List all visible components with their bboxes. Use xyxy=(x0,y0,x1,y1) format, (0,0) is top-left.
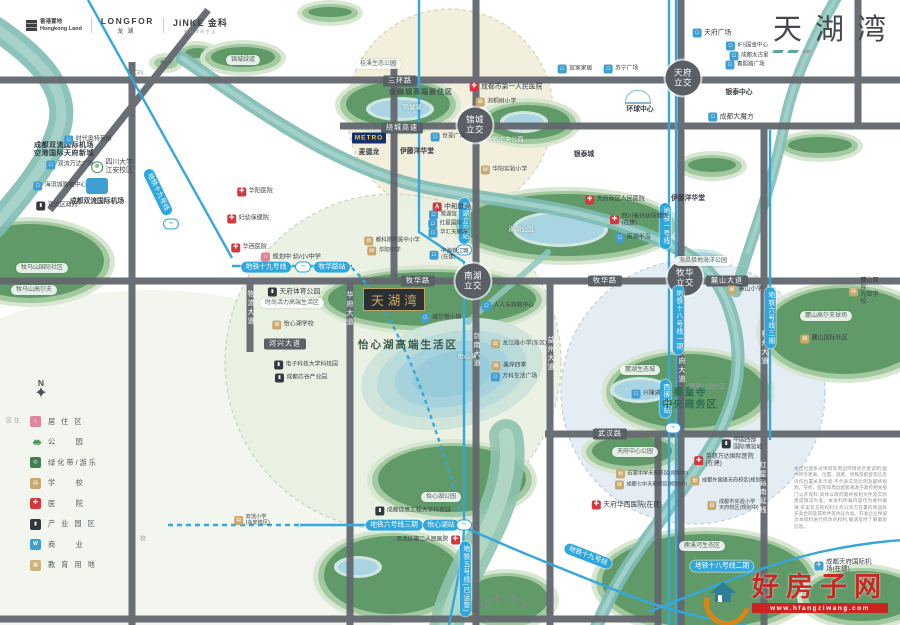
poi-label-text: 华西医院 xyxy=(243,245,267,252)
watermark-site-url: www.hfangziwang.com xyxy=(752,603,888,613)
place-pill-label: 海昌极地海洋公园 xyxy=(674,256,732,266)
poi-label-text: 华阳实验小学 xyxy=(492,167,527,174)
poi-label: ❁四川大学 江安校区 xyxy=(91,159,133,175)
poi-label: ✚四川省妇幼保健院 (在建) xyxy=(610,213,668,226)
poi-label-text: 宜家家居 xyxy=(569,66,592,73)
poi-label-text: 泡桐树小学 xyxy=(487,99,516,106)
poi-label-text: 成都市第一人民医院 xyxy=(481,83,542,91)
compass: N ✦ xyxy=(30,378,52,400)
legend-hosp-icon: ✚ xyxy=(30,498,41,509)
poi-label: ◻天府广场 xyxy=(693,29,732,38)
poi-label-text: 教科院附属中小学 xyxy=(376,238,420,244)
metro-station-icon: ~ xyxy=(295,262,311,273)
divider xyxy=(91,18,92,33)
road-name-label: 华府大道 xyxy=(345,291,353,327)
blue-icon: ◻ xyxy=(428,220,437,229)
poi-label: ▤华阳中学 xyxy=(367,247,401,256)
blue-icon: ◻ xyxy=(429,251,438,260)
hosp-icon: ✚ xyxy=(585,196,594,205)
dark-icon: ▮ xyxy=(274,361,283,370)
poi-label: ▤怡心湖学校 xyxy=(272,321,314,330)
hosp-icon: ✚ xyxy=(451,536,460,545)
legend-item: ▤学 校 xyxy=(30,478,98,489)
legend-item-label: 医 院 xyxy=(48,499,85,509)
legend-item: ▦教 育 用 地 xyxy=(30,560,98,571)
poi-label-text: 成都大魔方 xyxy=(720,113,754,121)
blue-icon: ◻ xyxy=(604,65,613,74)
poi-label: ▮天府体育公园 xyxy=(268,288,320,297)
road-name-label: 牧华路 xyxy=(401,275,435,286)
poi-label: ◻苏宁广场 xyxy=(604,65,639,74)
place-pill-label: 麓山高尔夫球场 xyxy=(800,311,852,321)
poi-label: ▤美岸四季 xyxy=(492,362,527,371)
poi-label-text: 规划中 幼/小/中学 xyxy=(273,253,321,260)
poi-label: ◻IFS国金中心 xyxy=(726,42,768,51)
poi-label-text: 麓山小学 xyxy=(739,287,763,294)
road-name-label: 益州大道 xyxy=(546,336,554,372)
plane-icon: ✈ xyxy=(815,562,824,571)
poi-label-text: 天府体育公园 xyxy=(279,288,320,296)
poi-label-text: 四川大学 江安校区 xyxy=(106,159,133,175)
place-pill-label: 桂溪生态公园 xyxy=(355,59,401,69)
poi-label-text: 人人乐购物中心 xyxy=(493,303,534,310)
place-pill-label: 牧马山国际社区 xyxy=(16,263,68,273)
road-name-label: 绕城高速 xyxy=(381,122,423,133)
place-pill-label: 锦城绿道 xyxy=(226,55,260,65)
blue-icon: ◻ xyxy=(615,234,624,243)
legend-item-label: 居 住 区 xyxy=(48,417,84,427)
metro-station-label: 怡心湖站 xyxy=(423,520,459,531)
road-name-label: 物流大道 xyxy=(246,290,254,326)
dark-icon: ▮ xyxy=(722,440,731,449)
legend-edu-icon: ▦ xyxy=(30,560,41,571)
place-label: 银泰城 xyxy=(574,151,594,159)
blue-icon: ◻ xyxy=(431,133,440,142)
district-title: 怡心湖高端生活区 xyxy=(358,339,458,351)
poi-label: ◻宜家家居 xyxy=(558,65,593,74)
dark-icon: ▮ xyxy=(275,374,284,383)
place-pill-label: 时尚活力高端生活区 xyxy=(260,298,324,308)
poi-label-text: 成都太古里 xyxy=(741,53,769,59)
place-label: 成都双流国际机场 xyxy=(70,198,124,206)
legend-item-label: 产 业 园 区 xyxy=(48,519,97,529)
tan-icon: ▤ xyxy=(364,237,373,246)
legend-green-icon: ◎ xyxy=(30,457,41,468)
metro-line-label: 地铁十八号线一期 xyxy=(673,286,684,355)
road-name-label: 三环路 xyxy=(383,75,417,86)
place-label: 伊藤洋华堂 xyxy=(400,148,434,156)
legend-park-icon: ♣♣ xyxy=(30,437,41,448)
blue-icon: ◻ xyxy=(429,211,438,220)
legend-item-label: 公 园 xyxy=(48,437,85,447)
metro-line-label: 地铁十九号线 xyxy=(241,262,291,273)
poi-label-text: 石室中学天府校区(规划中) xyxy=(627,471,688,477)
legend-item-label: 教 育 用 地 xyxy=(48,560,97,570)
tan-icon: ▤ xyxy=(707,502,716,511)
poi-label: ▤麓山小学 xyxy=(727,286,763,295)
poi-label: ▤龙江路小学(东区) xyxy=(491,340,547,349)
tan-icon: ▤ xyxy=(800,335,809,344)
legend-pink-icon: ⌂ xyxy=(30,416,41,427)
longfor-cn: 龙湖 xyxy=(101,26,154,35)
poi-label-text: 麓山国际社区 xyxy=(812,336,848,343)
road-name-label: 剑南大道 xyxy=(472,332,480,368)
poi-label-text: 万科生活广场 xyxy=(502,374,537,381)
title-decoration xyxy=(773,50,822,53)
small-text-label: 校 xyxy=(140,537,146,544)
tan-icon: ▤ xyxy=(367,247,376,256)
dark-icon: ▮ xyxy=(36,202,45,211)
poi-label-text: 美岸四季 xyxy=(503,363,526,370)
poi-label: ✚妇幼保健院 xyxy=(227,215,269,224)
poi-label: ◻成都大魔方 xyxy=(708,113,753,122)
poi-label: ▤华阳实验小学 xyxy=(481,166,527,175)
tan-icon: ▤ xyxy=(234,517,243,526)
poi-label: ▤麓山国际社区 xyxy=(800,335,848,344)
poi-label-text: 怡心湖学校 xyxy=(284,322,314,329)
poi-label: ▤石室中学天府校区(规划中) xyxy=(616,470,688,479)
poi-label-text: 麓山国际 光亚学校 xyxy=(861,278,884,306)
poi-label-text: 苏宁广场 xyxy=(615,66,638,73)
legend-item: ◎绿化带/游乐 xyxy=(30,457,98,468)
place-pill-label: 天府中心公园 xyxy=(612,447,658,457)
blue-icon: ◻ xyxy=(482,302,491,311)
hongkong-land-icon xyxy=(26,20,37,31)
place-pill-label: 牧马山高尔夫 xyxy=(11,285,57,295)
legend-item: ⌂居 住 区 xyxy=(30,416,98,427)
road-name-label: 武汉路 xyxy=(593,428,627,439)
poi-label-text: 时代奥特莱斯 xyxy=(76,137,112,144)
place-pill-label: 麓湖生态城 xyxy=(620,365,660,375)
hosp-icon: ✚ xyxy=(227,215,236,224)
poi-label: ◻世豪广场 xyxy=(431,133,466,142)
blue-icon: ◻ xyxy=(64,136,73,145)
poi-label: ✚天府新区人民医院 xyxy=(585,196,645,205)
poi-label: ▤教科院附属中小学 xyxy=(364,237,420,246)
blue-icon: ◻ xyxy=(428,229,437,238)
poi-label-text: 成都市实验小学 天府校区(规划中) xyxy=(719,500,759,512)
poi-label-text: 成都外国语天府校区(规划中) xyxy=(702,478,768,484)
place-label: 麦德龙 xyxy=(359,149,379,157)
poi-label-text: 鹭湖宫 xyxy=(440,212,457,218)
longfor-logo: LONGFOR 龙湖 xyxy=(101,16,154,35)
poi-label: ◻威尔顿小镇 xyxy=(421,314,462,323)
poi-label-text: 四川省妇幼保健院 (在建) xyxy=(622,213,668,226)
pink-icon: ⌂ xyxy=(261,253,270,262)
small-text-label: GN xyxy=(135,71,144,78)
park-name-label: 怡心湖 xyxy=(458,353,477,360)
project-plaque: 天湖湾 xyxy=(363,288,425,311)
poi-label: ✚成都市第一人民医院 xyxy=(470,83,543,92)
poi-label-text: 中海锦江城 (在建) xyxy=(441,249,469,262)
project-plaque-text: 天湖湾 xyxy=(371,290,421,309)
poi-label-text: 天府广场 xyxy=(704,29,731,37)
tan-icon: ▤ xyxy=(272,321,281,330)
poi-label-text: 华阳医院 xyxy=(249,189,273,196)
jinke-tagline: 美好你的生活 xyxy=(173,29,228,35)
jinke-en: JiNKE 金科 xyxy=(173,16,228,29)
poi-label: ▤成都市实验小学 天府校区(规划中) xyxy=(707,500,758,512)
metro-line-label: 地铁五号线(已运营) xyxy=(460,541,471,616)
map-canvas: 香港置地 Hongkong Land LONGFOR 龙湖 JiNKE 金科 美… xyxy=(0,0,900,625)
blue-icon: ◻ xyxy=(33,182,42,191)
poi-label-text: IFS国金中心 xyxy=(737,43,768,49)
blue-icon: ◻ xyxy=(491,373,500,382)
legend-items: ⌂居 住 区♣♣公 园◎绿化带/游乐▤学 校✚医 院▮产 业 园 区W商 业▦教… xyxy=(30,416,98,571)
poi-label: ◻万科生活广场 xyxy=(491,373,537,382)
project-title-text: 天湖湾 xyxy=(773,6,899,48)
airport-icon xyxy=(86,178,108,194)
poi-label-text: 华汇天鹅湖 xyxy=(440,230,468,236)
poi-label: ▮中国西部 国际博览城 xyxy=(722,437,763,450)
park-name-label: 南湖公园 xyxy=(509,226,534,233)
poi-label: ✚华阳医院 xyxy=(237,188,273,197)
poi-label: ▤双流小学 (永安校区) xyxy=(234,515,270,527)
poi-label-text: 成都芯谷产业园 xyxy=(286,375,327,382)
poi-label-text: 龙江路小学(东区) xyxy=(503,341,547,348)
poi-label-text: 威尔顿小镇 xyxy=(432,315,461,322)
poi-label-text: 成都信息工程大学科技园 xyxy=(387,508,451,515)
poi-label-text: 春熙路广场 xyxy=(737,62,765,68)
poi-label: ◻华汇天鹅湖 xyxy=(428,229,467,238)
poi-label: ◻中海锦江城 (在建) xyxy=(429,249,468,262)
tan-icon: ▤ xyxy=(727,286,736,295)
blue-icon: ◻ xyxy=(725,61,734,70)
poi-label-text: 英慈万达国际医院 (在建) xyxy=(706,454,754,468)
poi-label: ◻春熙路广场 xyxy=(725,61,764,70)
tan-icon: ▤ xyxy=(616,470,625,479)
poi-label: ◻双流万达广场 xyxy=(46,161,94,170)
legend-item: W商 业 xyxy=(30,539,98,550)
blue-icon: ◻ xyxy=(708,113,717,122)
tan-icon: ▤ xyxy=(615,481,624,490)
hk-en: Hongkong Land xyxy=(40,26,82,32)
poi-label: ✚华西医院 xyxy=(231,244,267,253)
hosp-icon: ✚ xyxy=(694,457,703,466)
blue-icon: ◻ xyxy=(729,52,738,61)
park-name-label: 锦城湖 xyxy=(403,104,422,111)
metro-line-label: 地铁十八号线二期 xyxy=(690,561,753,572)
place-pill-label: 怡心湖公园 xyxy=(421,492,461,502)
legend-item-label: 商 业 xyxy=(48,540,85,550)
poi-label: ⌂规划中 幼/小/中学 xyxy=(261,253,321,262)
road-name-label: 红星路南延线 xyxy=(758,461,766,515)
poi-label: ▤麓山国际 光亚学校 xyxy=(849,278,883,306)
poi-label-text: 兴隆湖 xyxy=(643,391,660,398)
poi-label: ◻南湖半岛 xyxy=(615,234,651,243)
poi-label-text: 天府华西医院(在建) xyxy=(603,501,662,509)
poi-label: ◻海滨城购物中心 xyxy=(33,182,87,191)
poi-label: ▤成都七中天府校区(规划中) xyxy=(615,481,687,490)
tan-icon: ▤ xyxy=(690,477,699,486)
tan-icon: ▤ xyxy=(492,362,501,371)
blue-icon: ◻ xyxy=(46,161,55,170)
small-text-label: 麓湖公园社区 xyxy=(689,385,725,392)
poi-label: ◻兴隆湖 xyxy=(632,390,661,399)
legend-item: ♣♣公 园 xyxy=(30,437,98,448)
interchange-badge: 南湖立交 xyxy=(456,264,491,299)
legend-item: ✚医 院 xyxy=(30,498,98,509)
tan-icon: ▤ xyxy=(491,340,500,349)
tan-icon: ▤ xyxy=(481,166,490,175)
poi-label-text: 双流区第二人民医院 xyxy=(396,537,448,544)
blue-icon: ◻ xyxy=(632,390,641,399)
blue-icon: ◻ xyxy=(693,29,702,38)
poi-label: ◻时代奥特莱斯 xyxy=(64,136,112,145)
metro-line-label: 地铁六号线三期 xyxy=(765,287,776,348)
poi-label: ✚天府华西医院(在建) xyxy=(592,501,662,510)
metro-station-label: 牧华路站 xyxy=(314,262,350,273)
longfor-en: LONGFOR xyxy=(101,16,154,26)
poi-label-text: 华阳中学 xyxy=(379,248,401,254)
poi-label-text: 双流小学 (永安校区) xyxy=(246,515,270,527)
place-label: 环球中心 xyxy=(626,106,653,114)
project-title: 天湖湾 xyxy=(773,6,886,53)
interchange-badge: 天府立交 xyxy=(666,61,701,96)
hosp-icon: ✚ xyxy=(231,244,240,253)
watermark-site-name: 好房子网 xyxy=(752,574,888,601)
watermark: 好房子网 www.hfangziwang.com xyxy=(702,574,888,620)
poi-label: ▮成都信息工程大学科技园 xyxy=(375,507,450,516)
metro-station-icon: ~ xyxy=(665,423,681,434)
hosp-icon: ✚ xyxy=(470,83,479,92)
hosp-icon: ✚ xyxy=(237,188,246,197)
metro-line-label: 地铁六号线三期 xyxy=(366,520,423,531)
poi-label: ✚双流区第二人民医院 xyxy=(396,536,460,545)
poi-label-text: 南湖半岛 xyxy=(627,235,651,242)
dark-icon: ▮ xyxy=(375,507,384,516)
poi-label-text: 天府新区人民医院 xyxy=(597,197,645,204)
district-heading: 金融城高端居住区 xyxy=(389,89,453,97)
tan-icon: ▤ xyxy=(476,98,485,107)
legend-biz-icon: W xyxy=(30,539,41,550)
poi-label-text: 世豪广场 xyxy=(442,134,465,141)
blue-icon: ◻ xyxy=(558,65,567,74)
metro-market-logo: METRO xyxy=(352,133,386,144)
disclaimer-text: 本区位图系对项目及周边环境的示意说明,图中所示距离、位置、道路、地铁及配套等信息… xyxy=(794,466,887,530)
map-legend: N ✦ ⌂居 住 区♣♣公 园◎绿化带/游乐▤学 校✚医 院▮产 业 园 区W商… xyxy=(30,378,98,580)
poi-label: ◻红星国际 xyxy=(428,220,462,229)
hosp-icon: ✚ xyxy=(592,501,601,510)
legend-item-label: 学 校 xyxy=(48,478,85,488)
poi-label: ✚英慈万达国际医院 (在建) xyxy=(694,454,754,468)
univ-icon: ❁ xyxy=(91,161,103,173)
legend-item: ▮产 业 园 区 xyxy=(30,519,98,530)
compass-star-icon: ✦ xyxy=(30,388,52,400)
poi-label-text: 海滨城购物中心 xyxy=(45,183,87,190)
small-text-label: 区 住 xyxy=(6,419,20,426)
poi-label: ▮成都芯谷产业园 xyxy=(275,374,327,383)
jinke-logo: JiNKE 金科 美好你的生活 xyxy=(173,16,228,35)
poi-label-text: 电子科技大学科技园 xyxy=(286,362,338,369)
poi-label: ▮电子科技大学科技园 xyxy=(274,361,338,370)
legend-item-label: 绿化带/游乐 xyxy=(48,458,98,468)
park-name-label: 大源中央公园 xyxy=(486,136,523,143)
legend-tan-icon: ▤ xyxy=(30,478,41,489)
place-label: 伊藤洋华堂 xyxy=(671,195,705,203)
blue-icon: ◻ xyxy=(726,42,735,51)
tan-icon: ▤ xyxy=(849,288,858,297)
place-pill-label: 鹿溪河生态区 xyxy=(679,541,725,551)
poi-label: ◻鹭湖宫 xyxy=(429,211,457,220)
poi-label: ◻人人乐购物中心 xyxy=(482,302,534,311)
poi-label-text: 妇幼保健院 xyxy=(239,216,269,223)
watermark-house-icon xyxy=(702,574,748,620)
road-name-label: 河兴大道 xyxy=(264,338,306,349)
hk-cn: 香港置地 xyxy=(40,19,62,25)
poi-label-text: 中国西部 国际博览城 xyxy=(733,437,762,450)
poi-label: ◻成都太古里 xyxy=(729,52,768,61)
metro-station-icon: ~ xyxy=(163,219,179,230)
hongkong-land-logo: 香港置地 Hongkong Land xyxy=(26,19,82,33)
developer-logos: 香港置地 Hongkong Land LONGFOR 龙湖 JiNKE 金科 美… xyxy=(26,16,228,35)
metro-station-icon: ~ xyxy=(456,520,472,531)
poi-label: ▤成都外国语天府校区(规划中) xyxy=(690,477,767,486)
blue-icon: ◻ xyxy=(421,314,430,323)
poi-label-text: 红星国际 xyxy=(440,221,462,227)
road-name-label: 牧华路 xyxy=(588,275,622,286)
divider xyxy=(163,18,164,33)
hosp-icon: ✚ xyxy=(610,216,619,225)
place-label: 银泰中心 xyxy=(725,89,752,97)
poi-label-text: 成都七中天府校区(规划中) xyxy=(626,482,687,488)
poi-label-text: 双流万达广场 xyxy=(58,162,94,169)
poi-label: ▤泡桐树小学 xyxy=(476,98,517,107)
legend-dark-icon: ▮ xyxy=(30,519,41,530)
dark-icon: ▮ xyxy=(268,288,277,297)
